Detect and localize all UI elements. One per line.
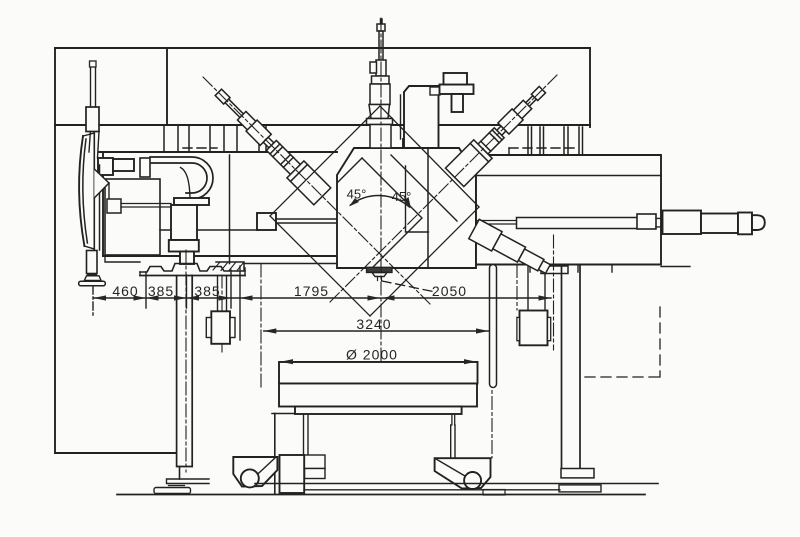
- svg-text:385: 385: [148, 283, 174, 299]
- svg-text:45°: 45°: [392, 189, 412, 204]
- svg-text:Ø 2000: Ø 2000: [346, 347, 398, 363]
- svg-text:460: 460: [112, 283, 138, 299]
- svg-text:1795: 1795: [294, 283, 329, 299]
- svg-text:3240: 3240: [356, 316, 391, 332]
- svg-text:45°: 45°: [347, 187, 367, 202]
- svg-text:2050: 2050: [432, 283, 467, 299]
- svg-text:385: 385: [194, 283, 220, 299]
